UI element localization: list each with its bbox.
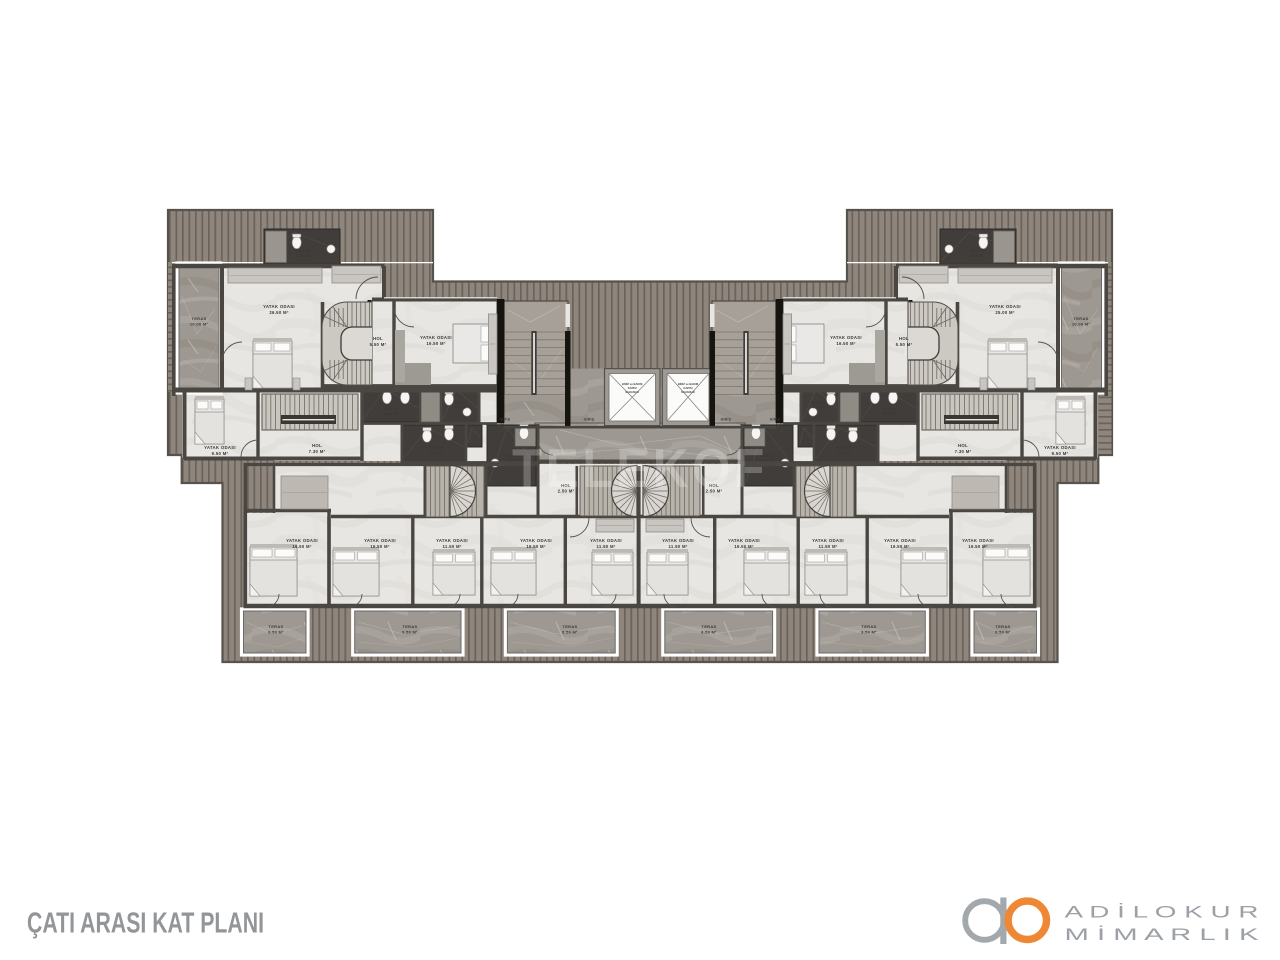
svg-text:YATAK ODASI: YATAK ODASI [1044, 445, 1076, 450]
svg-text:8.50 M²: 8.50 M² [701, 630, 717, 635]
svg-text:BANYO: BANYO [296, 249, 310, 253]
svg-text:GİRİŞ: GİRİŞ [770, 418, 781, 422]
svg-text:BANYO: BANYO [454, 401, 468, 405]
svg-text:YATAK ODASI: YATAK ODASI [364, 538, 396, 543]
svg-text:10.00 M²: 10.00 M² [1072, 322, 1091, 327]
svg-text:16.50 M²: 16.50 M² [526, 544, 546, 549]
svg-text:16.50 M²: 16.50 M² [370, 544, 390, 549]
svg-text:HOL: HOL [958, 443, 968, 448]
svg-text:M İ M A R L I K: M İ M A R L I K [1065, 925, 1259, 944]
svg-text:TERAS: TERAS [1073, 316, 1088, 321]
svg-text:8.50 M²: 8.50 M² [562, 630, 578, 635]
svg-text:BANYO: BANYO [384, 407, 398, 411]
svg-text:YATAK ODASI: YATAK ODASI [436, 538, 468, 543]
svg-text:TERAS: TERAS [701, 624, 716, 629]
svg-text:BANYO: BANYO [837, 446, 851, 450]
svg-text:ÇATI ARASI KAT PLANI: ÇATI ARASI KAT PLANI [27, 908, 264, 940]
svg-text:16.50 M²: 16.50 M² [890, 544, 910, 549]
svg-text:BİNİZ ve BAKIM: BİNİZ ve BAKIM [622, 382, 643, 386]
svg-text:GİRİŞ: GİRİŞ [721, 418, 732, 422]
svg-text:YATAK ODASI: YATAK ODASI [884, 538, 916, 543]
svg-text:16.50 M²: 16.50 M² [426, 341, 446, 346]
svg-text:16.50 M²: 16.50 M² [292, 544, 312, 549]
svg-text:9.50 M²: 9.50 M² [402, 630, 418, 635]
svg-text:YATAK ODASI: YATAK ODASI [520, 538, 552, 543]
svg-text:4.00 M²: 4.00 M² [454, 406, 468, 410]
svg-text:YATAK ODASI: YATAK ODASI [830, 335, 862, 340]
svg-text:BANYO: BANYO [970, 249, 984, 253]
svg-text:TERAS: TERAS [562, 624, 577, 629]
svg-text:SAHANLIK: SAHANLIK [625, 390, 639, 394]
svg-text:9.50 M²: 9.50 M² [268, 630, 284, 635]
svg-text:5.50 M²: 5.50 M² [896, 342, 913, 347]
svg-text:4.00 M²: 4.00 M² [429, 451, 444, 455]
svg-text:BANYO: BANYO [812, 401, 826, 405]
svg-text:7.30 M²: 7.30 M² [955, 449, 972, 454]
svg-text:BİNİZ ve BAKIM: BİNİZ ve BAKIM [678, 382, 699, 386]
svg-text:11.50 M²: 11.50 M² [818, 544, 837, 549]
svg-text:YATAK ODASI: YATAK ODASI [989, 304, 1021, 309]
svg-text:11.50 M²: 11.50 M² [596, 544, 615, 549]
svg-text:4.85 M²: 4.85 M² [970, 254, 985, 258]
svg-text:16.50 M²: 16.50 M² [836, 341, 856, 346]
svg-text:YATAK ODASI: YATAK ODASI [286, 538, 318, 543]
svg-text:TERAS: TERAS [402, 624, 417, 629]
svg-text:7.30 M²: 7.30 M² [309, 449, 326, 454]
svg-text:25.00 M²: 25.00 M² [995, 310, 1015, 315]
svg-text:BANYO: BANYO [429, 446, 443, 450]
svg-text:GİRİŞ: GİRİŞ [584, 418, 595, 422]
svg-text:5.50 M²: 5.50 M² [370, 342, 387, 347]
svg-text:11.50 M²: 11.50 M² [442, 544, 461, 549]
svg-text:TERAS: TERAS [191, 316, 206, 321]
svg-text:26.50 M²: 26.50 M² [269, 310, 289, 315]
svg-text:TERAS: TERAS [268, 624, 283, 629]
svg-text:YATAK ODASI: YATAK ODASI [263, 304, 295, 309]
svg-text:KAPISI: KAPISI [628, 386, 637, 390]
svg-text:HOL: HOL [312, 443, 322, 448]
svg-text:TERAS: TERAS [995, 624, 1010, 629]
svg-text:9.50 M²: 9.50 M² [861, 630, 877, 635]
svg-text:GİRİŞ: GİRİŞ [500, 418, 511, 422]
svg-text:4.50 M²: 4.50 M² [384, 412, 399, 416]
svg-text:YATAK ODASI: YATAK ODASI [812, 538, 844, 543]
svg-text:YATAK ODASI: YATAK ODASI [962, 538, 994, 543]
svg-text:11.50 M²: 11.50 M² [668, 544, 687, 549]
svg-text:9.50 M²: 9.50 M² [995, 630, 1011, 635]
svg-text:YATAK ODASI: YATAK ODASI [204, 445, 236, 450]
svg-text:4.00 M²: 4.00 M² [812, 406, 826, 410]
svg-text:HOL: HOL [899, 336, 909, 341]
svg-text:BANYO: BANYO [882, 407, 896, 411]
svg-text:KAPISI: KAPISI [684, 386, 693, 390]
svg-text:YATAK ODASI: YATAK ODASI [590, 538, 622, 543]
svg-text:YATAK ODASI: YATAK ODASI [728, 538, 760, 543]
svg-text:9.50 M²: 9.50 M² [212, 451, 229, 456]
svg-text:A D İ L O K U R: A D İ L O K U R [1065, 903, 1259, 922]
svg-text:HOL: HOL [373, 336, 383, 341]
svg-text:YATAK ODASI: YATAK ODASI [662, 538, 694, 543]
svg-text:4.00 M²: 4.00 M² [837, 451, 852, 455]
svg-text:9.50 M²: 9.50 M² [1052, 451, 1069, 456]
svg-text:YATAK ODASI: YATAK ODASI [420, 335, 452, 340]
svg-text:TELEKOF: TELEKOF [512, 437, 768, 499]
svg-text:TERAS: TERAS [861, 624, 876, 629]
svg-text:16.50 M²: 16.50 M² [734, 544, 754, 549]
svg-text:4.25 M²: 4.25 M² [296, 254, 311, 258]
svg-text:10.00 M²: 10.00 M² [190, 322, 209, 327]
svg-text:SAHANLIK: SAHANLIK [681, 390, 695, 394]
svg-text:16.50 M²: 16.50 M² [968, 544, 988, 549]
svg-text:4.50 M²: 4.50 M² [882, 412, 897, 416]
